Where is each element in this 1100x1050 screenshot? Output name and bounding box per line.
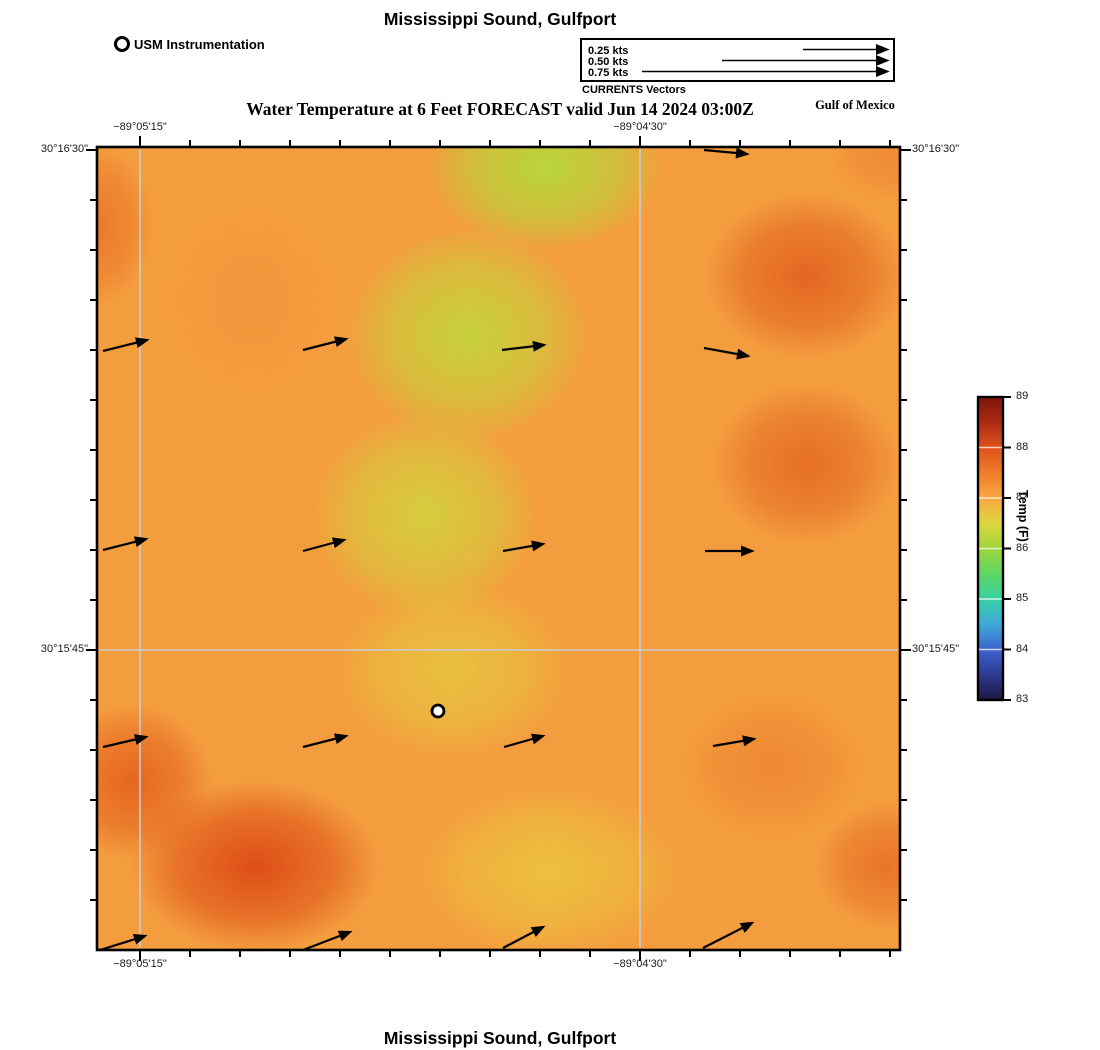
instrument-legend-icon [116,38,129,51]
currents-legend-entry: 0.75 kts [588,68,628,79]
y-tick-label-left: 30°15'45" [0,643,88,655]
currents-legend-title: CURRENTS Vectors [582,85,686,96]
page: Mississippi Sound, Gulfport USM Instrume… [0,0,1100,1050]
y-tick-label-right: 30°15'45" [912,643,1007,655]
y-tick-label-left: 30°16'30" [0,143,88,155]
instrument-legend-label: USM Instrumentation [134,37,265,52]
colorbar-tick-label: 84 [1016,643,1056,655]
colorbar-tick-label: 89 [1016,390,1056,402]
colorbar-tick-label: 83 [1016,693,1056,705]
x-tick-label-bottom: −89°04'30" [580,958,700,970]
y-tick-label-right: 30°16'30" [912,143,1007,155]
page-title-bottom: Mississippi Sound, Gulfport [0,1028,1000,1049]
colorbar-tick-label: 87 [1016,491,1056,503]
page-title-top: Mississippi Sound, Gulfport [0,9,1000,30]
currents-legend-box: 0.25 kts 0.50 kts 0.75 kts [580,38,895,82]
colorbar-tick-label: 88 [1016,441,1056,453]
temperature-heatmap [97,147,900,950]
x-tick-label-top: −89°04'30" [580,121,700,133]
x-tick-label-top: −89°05'15" [80,121,200,133]
x-tick-label-bottom: −89°05'15" [80,958,200,970]
region-label: Gulf of Mexico [780,98,930,113]
colorbar-tick-label: 86 [1016,542,1056,554]
colorbar-tick-label: 85 [1016,592,1056,604]
